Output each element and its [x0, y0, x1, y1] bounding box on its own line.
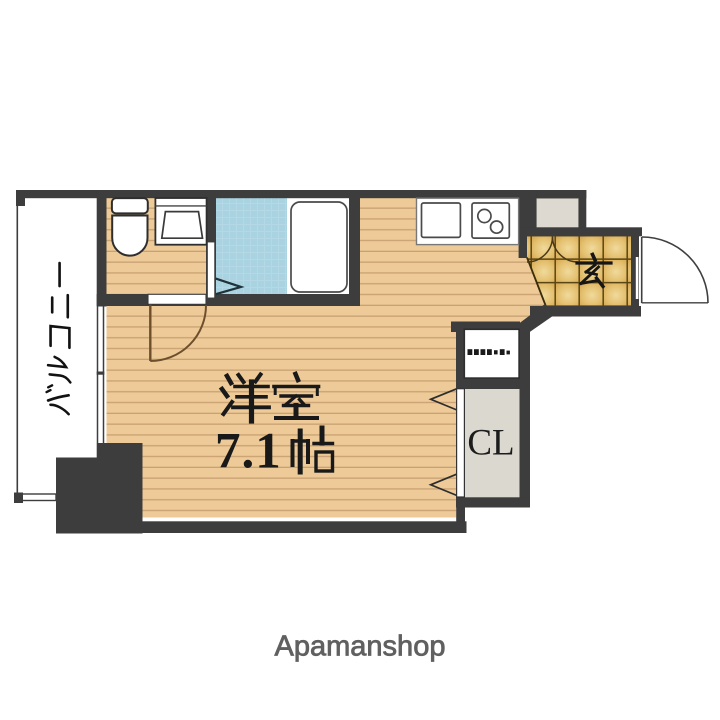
svg-text:CL: CL: [467, 423, 514, 464]
svg-text:Apamanshop: Apamanshop: [275, 631, 446, 663]
svg-text:7.1: 7.1: [215, 424, 282, 480]
